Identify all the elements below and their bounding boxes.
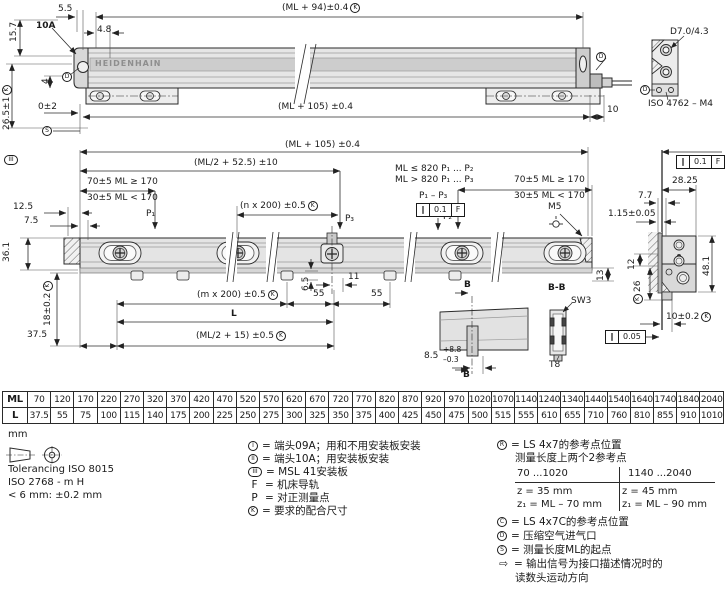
circled-k-symbol: K <box>308 201 318 211</box>
label-bore-d7: D7.0/4.3 <box>670 28 709 37</box>
table-cell-ml: 1740 <box>654 392 677 408</box>
note-small-dims: < 6 mm: ±0.2 mm <box>8 490 102 501</box>
table-cell-l: 300 <box>283 408 306 424</box>
table-cell-l: 115 <box>120 408 143 424</box>
ref-values-1: z = 35 mm z₁ = ML – 70 mm <box>515 483 619 511</box>
label-l: L <box>231 310 237 319</box>
dim-55-left: 55 <box>313 290 324 299</box>
table-cell-l: 710 <box>584 408 607 424</box>
legend-item-endhead-09a: I= 端头09A；用和不用安装板安装 <box>248 440 421 452</box>
circled-k-symbol: K <box>350 3 360 13</box>
table-cell-l: 75 <box>74 408 97 424</box>
heidenhain-logo: HEIDENHAIN <box>95 59 162 68</box>
dim-8-5: 8.5 <box>424 352 438 361</box>
table-cell-ml: 220 <box>97 392 120 408</box>
table-cell-l: 1010 <box>700 408 724 424</box>
table-cell-l: 910 <box>677 408 700 424</box>
table-cell-l: 810 <box>630 408 653 424</box>
table-cell-l: 760 <box>607 408 630 424</box>
table-cell-ml: 1140 <box>514 392 537 408</box>
legend-item-endhead-10a: II= 端头10A；用安装板安装 <box>248 453 389 465</box>
note-iso-2768: ISO 2768 - m H <box>8 477 84 488</box>
table-cell-l: 425 <box>399 408 422 424</box>
cross-section-linework <box>592 150 722 337</box>
table-cell-ml: 270 <box>120 392 143 408</box>
dim-7-5: 7.5 <box>24 217 38 226</box>
table-cell-l: 655 <box>561 408 584 424</box>
dim-ml94: (ML + 94)±0.4K <box>282 3 360 13</box>
label-p1: P₁ <box>146 210 155 219</box>
table-cell-l: 250 <box>236 408 259 424</box>
legend-item-align-point: P= 对正测量点 <box>248 492 330 504</box>
legend-item-ls4x7c: C= LS 4x7C的参考点位置 <box>497 516 629 528</box>
table-cell-l: 555 <box>514 408 537 424</box>
circled-k-symbol: K <box>276 331 286 341</box>
circled-d-symbol: D <box>640 85 650 95</box>
note-ml-le-820: ML ≤ 820 P₁ ... P₂ <box>395 165 473 174</box>
dim-18: 18±0.2K <box>43 281 53 326</box>
dim-30-left: 30±5 ML < 170 <box>87 194 158 203</box>
table-cell-l: 515 <box>491 408 514 424</box>
circled-k-symbol: K <box>633 294 643 304</box>
table-cell-l: 325 <box>306 408 329 424</box>
dim-48-1: 48.1 <box>703 256 712 276</box>
dim-5-5: 5.5 <box>58 5 72 14</box>
legend-item-ref-marks: R= LS 4x7的参考点位置 <box>497 439 622 451</box>
circled-iii-symbol: III <box>4 155 18 165</box>
table-cell-l: 175 <box>167 408 190 424</box>
tolerance-frame-01f-section: ∥0.1F <box>676 155 725 169</box>
dim-10: 10 <box>607 106 618 115</box>
legend-ref-marks-line2: 测量长度上两个2参考点 <box>515 452 627 464</box>
circled-s-symbol: S <box>42 126 52 136</box>
table-cell-l: 610 <box>538 408 561 424</box>
ml-l-table: ML 7012017022027032037042047052057062067… <box>2 391 724 424</box>
table-cell-l: 37.5 <box>28 408 51 424</box>
circled-c-symbol: C <box>497 517 507 527</box>
dim-4: 4 <box>42 78 51 84</box>
table-cell-ml: 1840 <box>677 392 700 408</box>
table-cell-ml: 1540 <box>607 392 630 408</box>
dim-30-right: 30±5 ML < 170 <box>514 192 585 201</box>
unit-label: mm <box>8 429 27 440</box>
table-cell-l: 500 <box>468 408 491 424</box>
encoder-dimension-drawing: HEIDENHAIN 5.5 (ML + 94)±0.4K 10A 4.8 15… <box>0 0 726 593</box>
dim-ml2-525: (ML/2 + 52.5) ±10 <box>194 159 278 168</box>
table-cell-l: 350 <box>329 408 352 424</box>
table-cell-l: 855 <box>654 408 677 424</box>
right-arrow-icon: ⇨ <box>497 558 510 570</box>
table-cell-l: 475 <box>445 408 468 424</box>
dim-10-02: 10±0.2K <box>666 312 711 322</box>
dim-12-section: 12 <box>628 259 637 270</box>
table-cell-ml: 70 <box>28 392 51 408</box>
dim-8-5-plus: +8.8 <box>443 346 461 354</box>
table-cell-ml: 1440 <box>584 392 607 408</box>
circled-k-symbol: K <box>2 85 12 95</box>
dim-6-5: 6.5 <box>302 277 311 291</box>
ref-mark-table: 70 ...1020 1140 ...2040 z = 35 mm z₁ = M… <box>515 467 715 511</box>
circled-r-symbol: R <box>497 440 507 450</box>
table-cell-ml: 420 <box>190 392 213 408</box>
table-cell-l: 375 <box>352 408 375 424</box>
dim-70-left: 70±5 ML ≥ 170 <box>87 178 158 187</box>
table-cell-l: 275 <box>259 408 282 424</box>
circled-s-symbol: S <box>497 545 507 555</box>
dim-ml2-15: (ML/2 + 15) ±0.5K <box>196 331 286 341</box>
table-cell-ml: 1070 <box>491 392 514 408</box>
table-cell-ml: 870 <box>399 392 422 408</box>
legend-item-guideway: F= 机床导轨 <box>248 479 319 491</box>
label-b-top: B <box>464 281 471 290</box>
table-cell-l: 100 <box>97 408 120 424</box>
table-cell-ml: 620 <box>283 392 306 408</box>
tolerance-frame-01f: ∥0.1F <box>416 203 465 217</box>
label-head-10a: 10A <box>36 22 56 31</box>
label-p3: P₃ <box>345 215 354 224</box>
m5-air-fitting-icon <box>549 216 563 227</box>
dim-11: 11 <box>348 273 359 282</box>
projection-symbol-icon <box>6 446 62 464</box>
ref-range-2: 1140 ...2040 <box>619 467 715 483</box>
table-header-l: L <box>3 408 28 424</box>
circled-i-symbol: I <box>248 441 258 451</box>
table-cell-ml: 470 <box>213 392 236 408</box>
dim-28-25: 28.25 <box>672 177 698 186</box>
dim-26: K26 <box>633 281 643 304</box>
dim-0-2: 0±2 <box>38 103 57 112</box>
label-bb-section: B-B <box>548 284 565 293</box>
table-cell-l: 55 <box>51 408 74 424</box>
table-cell-l: 225 <box>213 408 236 424</box>
table-cell-ml: 1340 <box>561 392 584 408</box>
circled-iii-symbol: III <box>248 467 262 477</box>
dim-8-5-minus: –0.3 <box>443 356 459 364</box>
legend-item-required-fit: K= 要求的配合尺寸 <box>248 505 348 517</box>
label-b-bottom: B <box>463 371 470 380</box>
dim-nx200: (n x 200) ±0.5K <box>240 201 318 211</box>
table-cell-ml: 920 <box>422 392 445 408</box>
note-tolerancing: Tolerancing ISO 8015 <box>8 464 114 475</box>
table-cell-ml: 770 <box>352 392 375 408</box>
table-cell-ml: 1240 <box>538 392 561 408</box>
table-cell-l: 450 <box>422 408 445 424</box>
table-row-l: L 37.55575100115140175200225250275300325… <box>3 408 724 424</box>
letter-p-symbol: P <box>248 492 261 504</box>
table-cell-ml: 520 <box>236 392 259 408</box>
table-row-ml: ML 7012017022027032037042047052057062067… <box>3 392 724 408</box>
table-cell-l: 400 <box>375 408 398 424</box>
dim-55-right: 55 <box>371 290 382 299</box>
circled-d-symbol: D <box>596 52 606 62</box>
dim-ml105-plan: (ML + 105) ±0.4 <box>285 141 360 150</box>
table-cell-ml: 1640 <box>630 392 653 408</box>
dim-26-5: 26.5±1K <box>2 85 12 130</box>
dim-70-right: 70±5 ML ≥ 170 <box>514 176 585 185</box>
dim-37-5: 37.5 <box>27 331 47 340</box>
circled-k-symbol: K <box>43 281 53 291</box>
table-cell-ml: 970 <box>445 392 468 408</box>
dim-mx200: (m x 200) ±0.5K <box>197 290 278 300</box>
tolerance-frame-005: ∥0.05 <box>605 330 646 344</box>
table-cell-ml: 570 <box>259 392 282 408</box>
dim-15-7: 15.7 <box>10 22 19 42</box>
dim-4-8: 4.8 <box>97 26 111 35</box>
label-m5: M5 <box>548 203 562 212</box>
ref-values-2: z = 45 mm z₁ = ML – 90 mm <box>619 483 715 511</box>
table-cell-ml: 1020 <box>468 392 491 408</box>
dim-36-1: 36.1 <box>3 242 12 262</box>
table-cell-ml: 320 <box>143 392 166 408</box>
table-cell-ml: 820 <box>375 392 398 408</box>
circled-k-symbol: K <box>248 506 258 516</box>
table-cell-l: 140 <box>143 408 166 424</box>
legend-item-output-direction: ⇨= 输出信号为接口描述情况时的 <box>497 558 663 570</box>
circled-k-symbol: K <box>268 290 278 300</box>
dim-13: 13 <box>597 270 606 281</box>
legend-item-air-inlet: D= 压缩空气进气口 <box>497 530 597 542</box>
table-cell-ml: 2040 <box>700 392 724 408</box>
circled-ii-symbol: II <box>248 454 258 464</box>
table-cell-ml: 120 <box>51 392 74 408</box>
table-cell-ml: 720 <box>329 392 352 408</box>
label-p1-p3: P₁ – P₃ <box>419 192 447 201</box>
table-header-ml: ML <box>3 392 28 408</box>
table-cell-ml: 670 <box>306 392 329 408</box>
label-iso-4762: ISO 4762 – M4 <box>648 100 713 109</box>
legend-item-msl41: III= MSL 41安装板 <box>248 466 348 478</box>
letter-f-symbol: F <box>248 479 261 491</box>
table-cell-l: 200 <box>190 408 213 424</box>
table-cell-ml: 170 <box>74 392 97 408</box>
circled-d-symbol: D <box>62 72 72 82</box>
label-t8: T8 <box>549 361 560 370</box>
table-cell-ml: 370 <box>167 392 190 408</box>
note-ml-gt-820: ML > 820 P₁ ... P₃ <box>395 176 473 185</box>
label-sw3: SW3 <box>571 297 591 306</box>
legend-output-direction-line2: 读数头运动方向 <box>515 572 589 584</box>
dim-ml105-top: (ML + 105) ±0.4 <box>278 103 353 112</box>
legend-item-ml-start: S= 测量长度ML的起点 <box>497 544 612 556</box>
dim-7-7: 7.7 <box>638 192 652 201</box>
dim-12-5: 12.5 <box>13 203 33 212</box>
ref-range-1: 70 ...1020 <box>515 467 619 483</box>
dim-1-15: 1.15±0.05 <box>608 210 656 219</box>
circled-d-symbol: D <box>497 531 507 541</box>
circled-k-symbol: K <box>701 312 711 322</box>
